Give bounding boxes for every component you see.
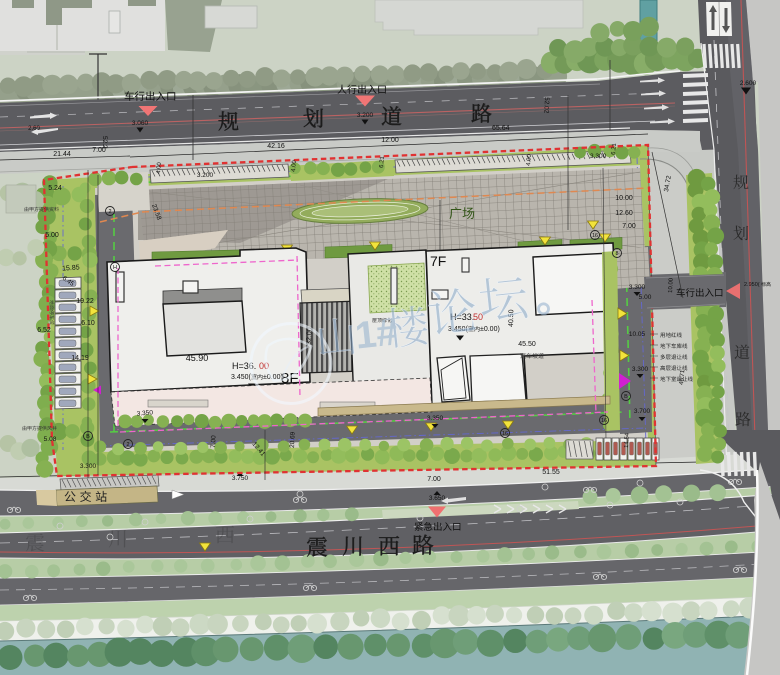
svg-text:12.00: 12.00	[381, 137, 399, 144]
svg-text:3.350: 3.350	[136, 409, 153, 417]
svg-text:7.00: 7.00	[92, 147, 106, 154]
svg-text:65.64: 65.64	[492, 125, 510, 132]
svg-text:50: 50	[473, 312, 483, 322]
svg-text:45.50: 45.50	[518, 341, 536, 348]
svg-text:4.00: 4.00	[156, 161, 163, 174]
svg-text:3.350: 3.350	[427, 415, 444, 422]
svg-text:3.060: 3.060	[132, 120, 149, 127]
svg-text:1#: 1#	[353, 311, 399, 357]
svg-text:2.600: 2.600	[740, 80, 757, 87]
svg-text:7.00: 7.00	[210, 435, 217, 448]
svg-text:3.300: 3.300	[629, 284, 646, 291]
svg-text:14.54: 14.54	[624, 432, 631, 448]
svg-text:3.200: 3.200	[197, 172, 214, 179]
svg-text:52.02: 52.02	[542, 97, 550, 114]
svg-text:21.44: 21.44	[53, 151, 71, 158]
svg-text:5.24: 5.24	[48, 185, 62, 192]
svg-text:10.00: 10.00	[668, 277, 675, 293]
svg-text:8: 8	[615, 251, 618, 257]
svg-text:16: 16	[592, 233, 598, 239]
svg-text:3.750: 3.750	[232, 475, 249, 482]
svg-text:5.00: 5.00	[45, 232, 59, 239]
svg-text:16: 16	[601, 418, 607, 424]
svg-text:B: B	[624, 394, 628, 400]
svg-text:10.00: 10.00	[615, 195, 633, 202]
svg-text:6.21: 6.21	[379, 155, 386, 168]
svg-text:5.08: 5.08	[44, 436, 57, 443]
svg-text:2: 2	[126, 442, 129, 448]
svg-text:7.00: 7.00	[622, 223, 636, 230]
svg-text:6.52: 6.52	[37, 327, 51, 334]
svg-text:2: 2	[108, 209, 111, 215]
svg-text:B: B	[86, 434, 90, 440]
svg-text:10.05: 10.05	[629, 331, 646, 338]
svg-text:7.00: 7.00	[427, 476, 441, 483]
svg-text:16: 16	[502, 431, 508, 437]
svg-text:4.00: 4.00	[526, 153, 533, 166]
svg-text:20.69: 20.69	[289, 431, 297, 448]
svg-text:40.50: 40.50	[508, 309, 515, 327]
svg-text:3.200: 3.200	[357, 112, 374, 119]
svg-text:3.300: 3.300	[632, 366, 649, 373]
svg-text:15.85: 15.85	[62, 264, 80, 272]
svg-text:6.21: 6.21	[611, 142, 618, 155]
svg-text:H: H	[113, 265, 117, 271]
svg-text:14.19: 14.19	[71, 355, 89, 362]
svg-text:±0.00): ±0.00)	[480, 326, 500, 333]
svg-text:51.55: 51.55	[542, 469, 560, 476]
svg-text:5.00: 5.00	[639, 294, 652, 301]
svg-text:3.300: 3.300	[590, 153, 607, 160]
svg-text:3.700: 3.700	[634, 408, 651, 415]
svg-text:3.450(: 3.450(	[231, 374, 252, 381]
svg-text:7F: 7F	[430, 253, 446, 269]
svg-text:45.90: 45.90	[186, 353, 209, 363]
svg-text:2.950(: 2.950(	[744, 282, 760, 288]
svg-text:4.00: 4.00	[291, 159, 298, 172]
svg-text:42.16: 42.16	[267, 143, 285, 150]
svg-text:19.22: 19.22	[76, 298, 94, 305]
svg-text:2.60: 2.60	[28, 126, 40, 132]
svg-text:12.60: 12.60	[615, 210, 633, 217]
